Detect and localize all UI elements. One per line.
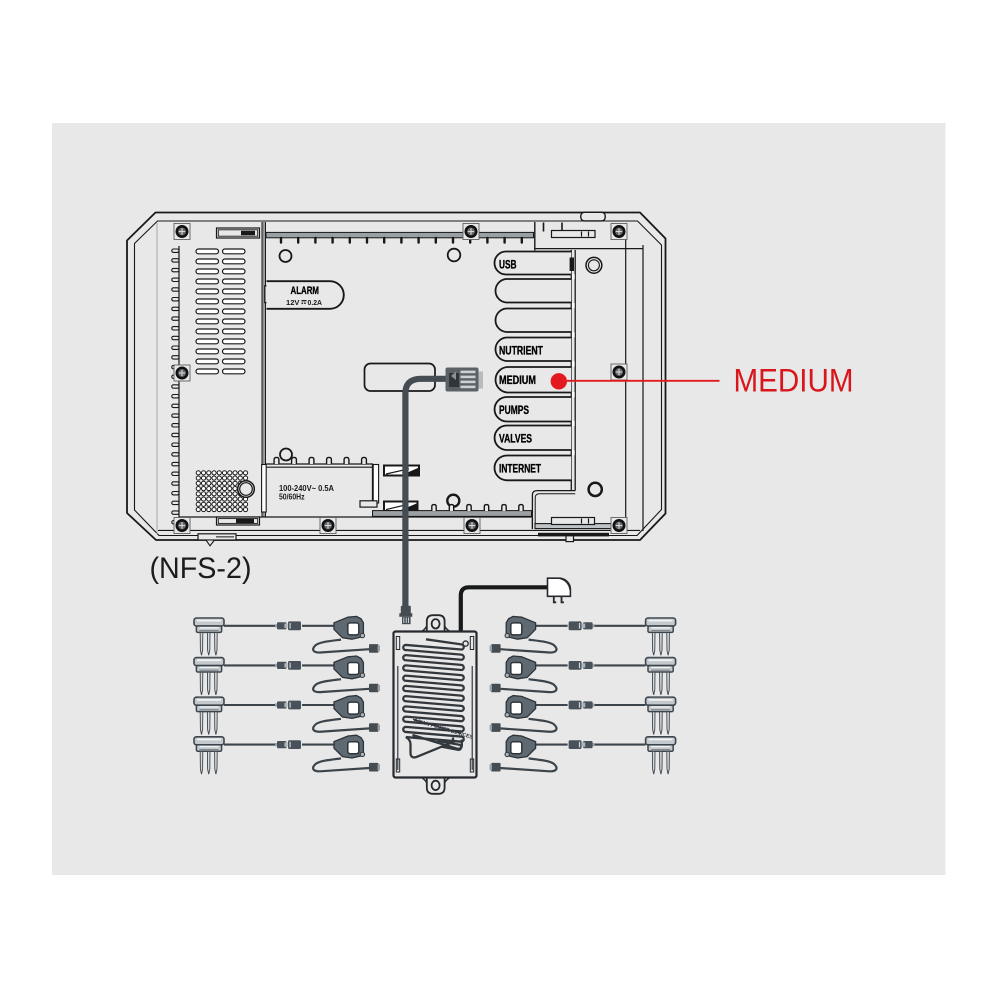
- svg-text:VALVES: VALVES: [499, 432, 532, 446]
- svg-text:INTERNET: INTERNET: [499, 462, 541, 476]
- svg-text:(NFS-2): (NFS-2): [150, 552, 252, 585]
- svg-text:12V: 12V: [286, 298, 300, 307]
- svg-text:MEDIUM: MEDIUM: [499, 373, 536, 387]
- svg-text:ALARM: ALARM: [291, 285, 320, 297]
- svg-text:MEDIUM: MEDIUM: [734, 363, 854, 399]
- svg-text:NUTRIENT: NUTRIENT: [499, 344, 543, 358]
- svg-text:50/60Hz: 50/60Hz: [279, 493, 305, 502]
- svg-text:0.2A: 0.2A: [308, 298, 323, 307]
- svg-text:PUMPS: PUMPS: [499, 403, 529, 417]
- svg-text:100-240V~ 0.5A: 100-240V~ 0.5A: [279, 484, 334, 493]
- svg-text:USB: USB: [499, 258, 517, 272]
